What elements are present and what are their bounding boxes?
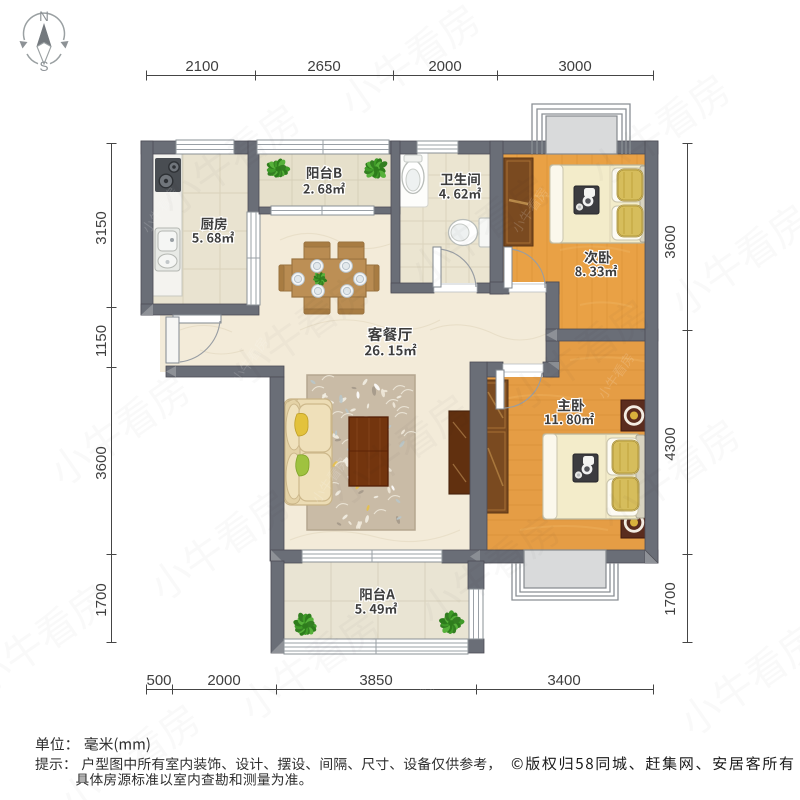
svg-text:S: S xyxy=(39,59,48,74)
svg-text:1150: 1150 xyxy=(93,325,110,357)
svg-text:2000: 2000 xyxy=(207,672,240,689)
svg-text:3150: 3150 xyxy=(93,211,110,244)
svg-text:500: 500 xyxy=(146,672,171,689)
svg-text:3600: 3600 xyxy=(662,225,679,258)
svg-text:1700: 1700 xyxy=(662,582,679,615)
svg-text:3000: 3000 xyxy=(558,58,591,75)
svg-text:2100: 2100 xyxy=(185,58,218,75)
svg-text:3400: 3400 xyxy=(547,672,580,689)
svg-text:N: N xyxy=(39,9,49,24)
svg-text:2650: 2650 xyxy=(307,58,340,75)
svg-text:3850: 3850 xyxy=(359,672,392,689)
